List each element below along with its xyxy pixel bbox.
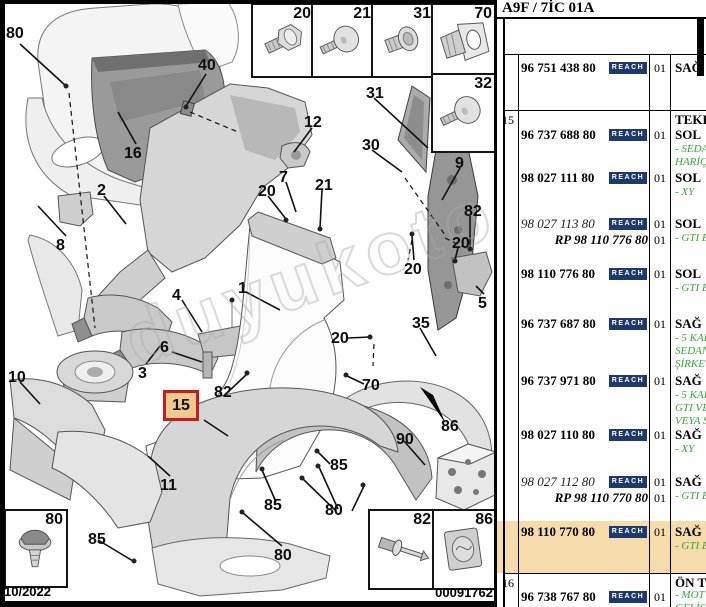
part-callout-8: 8	[56, 238, 65, 254]
fastener-box-21: 21	[311, 3, 376, 78]
fastener-box-80: 80	[4, 509, 68, 588]
part-callout-6: 6	[160, 340, 169, 356]
box-number: 82	[413, 511, 431, 529]
part-callout-20: 20	[258, 184, 276, 200]
parts-table: A9F / 7İC 01A 96 751 438 80 REACH 01 SAĞ…	[497, 0, 706, 607]
reach-badge[interactable]: REACH	[609, 476, 647, 488]
part-callout-3: 3	[138, 366, 147, 382]
diagram-number: 00091762	[429, 585, 493, 600]
description-note: - MOT	[675, 589, 705, 601]
part-callout-85: 85	[264, 498, 282, 514]
part-number[interactable]: 98 110 776 80	[521, 266, 595, 282]
part-callout-10: 10	[8, 370, 26, 386]
part-number[interactable]: 96 737 971 80	[521, 373, 596, 389]
part-callout-11: 11	[160, 478, 177, 494]
box-number: 86	[475, 511, 493, 529]
part-number[interactable]: 96 738 767 80	[521, 589, 596, 605]
description-note: - SEDA	[675, 143, 706, 155]
table-line	[497, 17, 706, 19]
description: SAĞ	[675, 427, 702, 443]
highlighted-callout-15[interactable]: 15	[163, 390, 199, 421]
frame-top	[0, 0, 497, 4]
part-callout-40: 40	[198, 58, 216, 74]
part-number[interactable]: 98 027 111 80	[521, 170, 594, 186]
table-line	[670, 54, 671, 607]
part-callout-12: 12	[304, 115, 322, 131]
table-line	[503, 573, 706, 574]
description-note: GTI VE	[675, 402, 706, 414]
reach-badge[interactable]: REACH	[609, 129, 647, 141]
replacement-part-number[interactable]: RP 98 110 776 80	[521, 232, 648, 248]
quantity: 01	[651, 475, 669, 490]
reach-badge[interactable]: REACH	[609, 172, 647, 184]
box-number: 80	[45, 511, 63, 529]
part-callout-20: 20	[452, 236, 470, 252]
box-number: 31	[413, 5, 431, 23]
fastener-box-31: 31	[371, 3, 436, 78]
description-note: - 5 KAP	[675, 389, 706, 401]
part-callout-20: 20	[331, 331, 349, 347]
description-note: - GTI E	[675, 232, 706, 244]
replacement-part-number[interactable]: RP 98 110 770 80	[521, 490, 648, 506]
quantity: 01	[651, 217, 669, 232]
part-callout-90: 90	[396, 432, 414, 448]
quantity: 01	[651, 525, 669, 540]
part-number-superseded[interactable]: 98 027 113 80	[521, 216, 595, 232]
part-number-superseded[interactable]: 98 027 112 80	[521, 474, 595, 490]
reach-badge[interactable]: REACH	[609, 591, 647, 603]
fastener-box-70: 70	[431, 3, 497, 78]
fastener-box-32: 32	[431, 73, 497, 153]
box-number: 32	[474, 75, 492, 93]
reach-badge[interactable]: REACH	[609, 218, 647, 230]
part-callout-86: 86	[441, 419, 459, 435]
description: SOL	[675, 266, 701, 282]
frame-bottom	[0, 601, 497, 607]
description: SOL	[675, 170, 701, 186]
description: SOL	[675, 127, 701, 143]
description: SAĞ	[675, 60, 702, 76]
description-note: VEYA S	[675, 415, 706, 427]
part-callout-20: 20	[404, 262, 422, 278]
fastener-box-82: 82	[368, 509, 436, 590]
quantity: 01	[651, 317, 669, 332]
part-callout-31: 31	[366, 86, 384, 102]
box-number: 21	[353, 5, 371, 23]
quantity: 01	[651, 374, 669, 389]
part-callout-7: 7	[279, 170, 288, 186]
description: SAĞ	[675, 373, 702, 389]
part-callout-70: 70	[362, 378, 380, 394]
description-note: - GTI E	[675, 282, 706, 294]
part-callout-21: 21	[315, 178, 333, 194]
quantity: 01	[651, 590, 669, 605]
parts-catalog-page: duyukoto.com 804016281034611231309721208…	[0, 0, 706, 607]
description: SAĞ	[675, 524, 702, 540]
part-callout-16: 16	[124, 146, 142, 162]
description-note: GELİŞ	[675, 602, 705, 607]
part-number[interactable]: 96 751 438 80	[521, 60, 596, 76]
reach-badge[interactable]: REACH	[609, 268, 647, 280]
quantity: 01	[651, 61, 669, 76]
description-note: - XY	[675, 186, 694, 198]
table-line	[518, 54, 519, 607]
description-note: SEDAN	[675, 345, 706, 357]
part-callout-2: 2	[97, 183, 106, 199]
group-ref: 16	[502, 576, 514, 591]
reach-badge[interactable]: REACH	[609, 429, 647, 441]
quantity: 01	[651, 128, 669, 143]
table-line	[503, 110, 706, 111]
part-number[interactable]: 98 027 110 80	[521, 427, 595, 443]
part-callout-5: 5	[478, 296, 487, 312]
reach-badge[interactable]: REACH	[609, 318, 647, 330]
quantity: 01	[651, 428, 669, 443]
table-line	[503, 17, 505, 607]
part-callout-80: 80	[6, 26, 24, 42]
description-note: - GTI E	[675, 540, 706, 552]
part-callout-85: 85	[88, 532, 106, 548]
part-callout-4: 4	[172, 288, 181, 304]
description-note: - XY	[675, 443, 694, 455]
description-note: ŞİRKE	[675, 358, 705, 370]
description-note: - 5 KAP	[675, 332, 706, 344]
part-callout-30: 30	[362, 138, 380, 154]
description: SOL	[675, 216, 701, 232]
box-number: 70	[474, 5, 492, 23]
diagram-date: 10/2022	[4, 584, 51, 599]
description: SAĞ	[675, 316, 702, 332]
part-callout-80: 80	[274, 548, 292, 564]
part-number[interactable]: 96 737 687 80	[521, 316, 596, 332]
description-note: - GTI E	[675, 490, 706, 502]
quantity: 01	[651, 491, 669, 506]
reach-badge[interactable]: REACH	[609, 375, 647, 387]
part-callout-80: 80	[325, 503, 343, 519]
box-number: 20	[293, 5, 311, 23]
exploded-parts-diagram: duyukoto.com 804016281034611231309721208…	[0, 0, 497, 607]
part-callout-1: 1	[238, 281, 247, 297]
reach-badge[interactable]: REACH	[609, 62, 647, 74]
part-number[interactable]: 96 737 688 80	[521, 127, 596, 143]
part-callout-82: 82	[464, 204, 482, 220]
part-callout-82: 82	[214, 385, 232, 401]
part-callout-9: 9	[455, 156, 464, 172]
quantity: 01	[651, 233, 669, 248]
description-note: HARİÇ	[675, 156, 706, 168]
part-number[interactable]: 98 110 770 80	[521, 524, 595, 540]
group-title: TEKER	[675, 112, 706, 128]
part-callout-85: 85	[330, 458, 348, 474]
table-line	[503, 54, 706, 55]
part-callout-35: 35	[412, 316, 430, 332]
fastener-box-86: 86	[432, 509, 497, 590]
reach-badge[interactable]: REACH	[609, 526, 647, 538]
frame-left	[0, 0, 5, 607]
catalog-reference-title: A9F / 7İC 01A	[502, 0, 594, 17]
description: SAĞ	[675, 474, 702, 490]
fastener-box-20: 20	[251, 3, 316, 78]
table-line	[649, 54, 650, 607]
quantity: 01	[651, 267, 669, 282]
group-ref: 15	[502, 113, 514, 128]
quantity: 01	[651, 171, 669, 186]
